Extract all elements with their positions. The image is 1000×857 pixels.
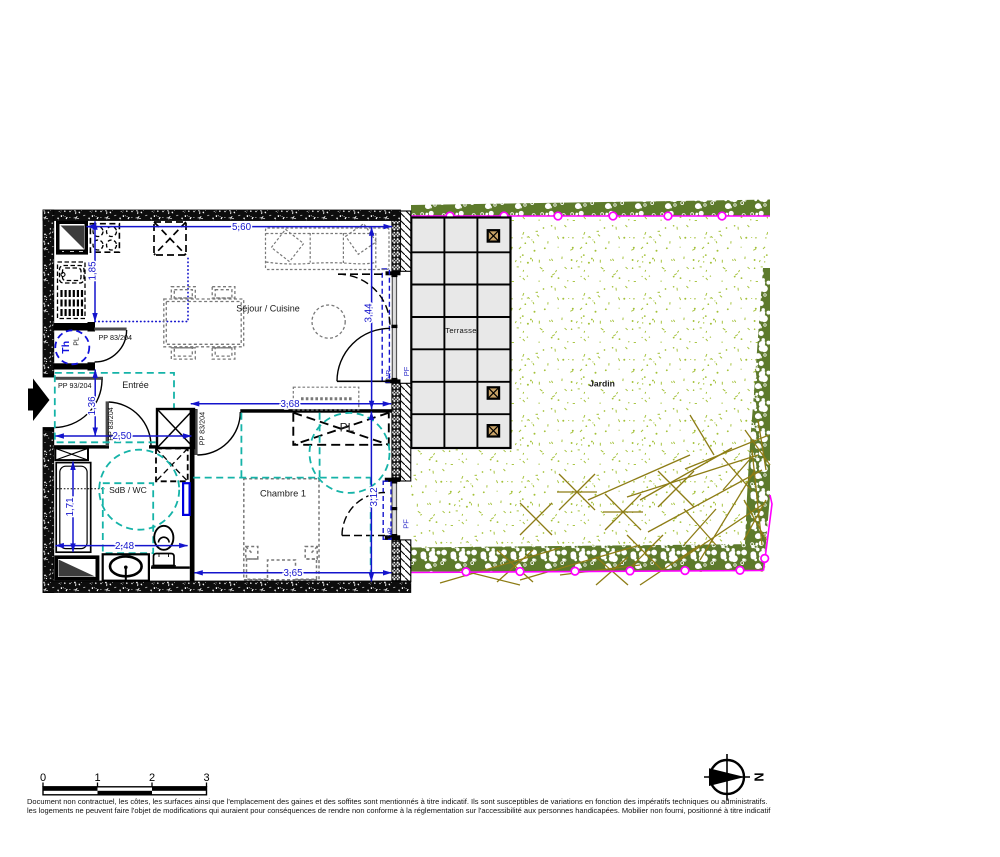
svg-text:3,65: 3,65: [283, 568, 303, 579]
svg-text:2,50: 2,50: [112, 431, 132, 442]
svg-text:PF: PF: [402, 519, 411, 529]
svg-text:0: 0: [40, 772, 46, 784]
svg-text:VR: VR: [387, 527, 394, 536]
svg-text:VR: VR: [386, 370, 393, 379]
svg-text:5,60: 5,60: [232, 222, 252, 233]
svg-text:PL: PL: [74, 337, 81, 346]
svg-text:N: N: [752, 772, 766, 781]
svg-text:3: 3: [203, 772, 209, 784]
svg-text:PP 83/204: PP 83/204: [106, 407, 115, 440]
svg-text:Jardin: Jardin: [589, 378, 615, 388]
svg-text:PP 83/204: PP 83/204: [197, 412, 206, 445]
svg-text:PL: PL: [340, 421, 355, 435]
svg-text:Document non contractuel, les: Document non contractuel, les côtes, les…: [27, 797, 767, 806]
svg-text:1,36: 1,36: [87, 396, 98, 416]
svg-text:PF: PF: [402, 366, 411, 376]
svg-text:1: 1: [94, 772, 100, 784]
svg-text:les logements ne peuvent faire: les logements ne peuvent faire l'objet d…: [27, 806, 771, 815]
svg-text:2: 2: [149, 772, 155, 784]
svg-text:Terrasse: Terrasse: [445, 326, 477, 335]
svg-text:PP 83/204: PP 83/204: [99, 333, 132, 342]
svg-text:2,48: 2,48: [115, 541, 135, 552]
svg-text:3,44: 3,44: [364, 303, 375, 323]
svg-text:1,71: 1,71: [65, 497, 76, 516]
svg-text:Séjour / Cuisine: Séjour / Cuisine: [236, 303, 300, 313]
svg-text:3,12: 3,12: [369, 487, 380, 506]
svg-text:3,68: 3,68: [280, 399, 300, 410]
svg-text:SdB / WC: SdB / WC: [109, 485, 147, 495]
svg-text:PP 93/204: PP 93/204: [58, 381, 91, 390]
svg-text:Chambre 1: Chambre 1: [260, 488, 306, 498]
svg-text:Entrée: Entrée: [122, 380, 149, 390]
svg-text:Th: Th: [60, 341, 72, 354]
svg-text:1,85: 1,85: [87, 261, 98, 281]
